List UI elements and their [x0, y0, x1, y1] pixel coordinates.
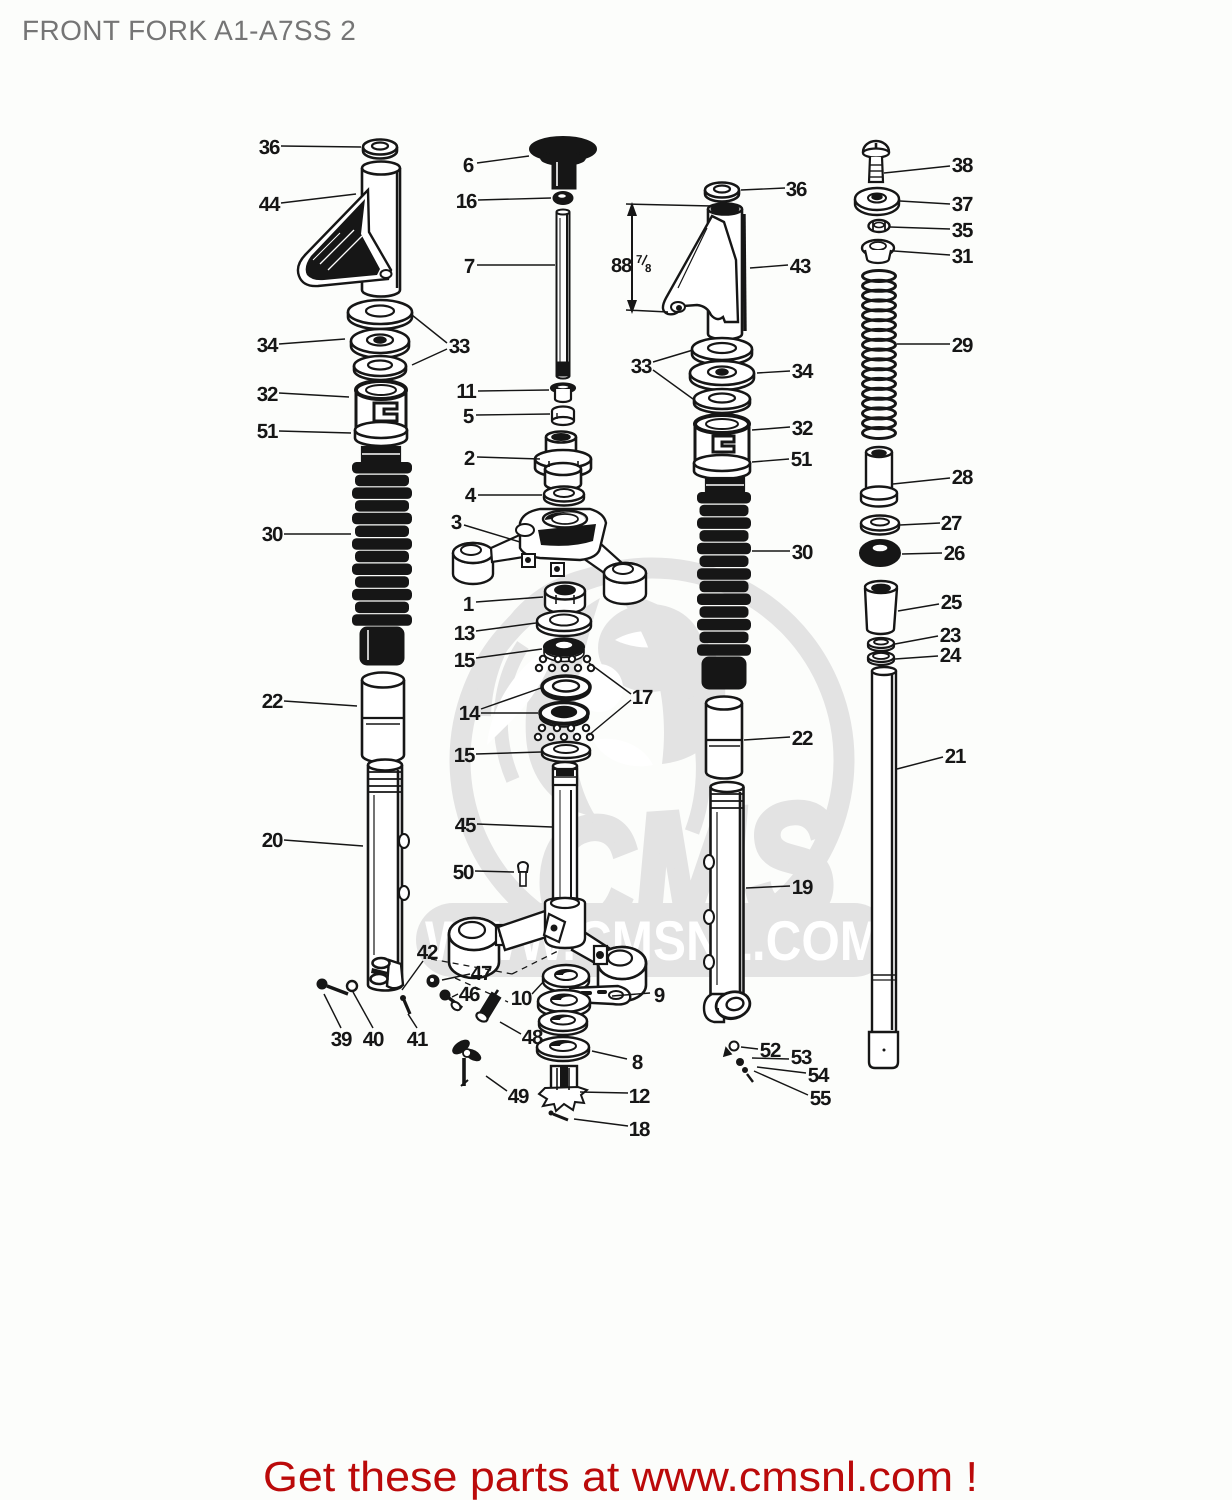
svg-text:8: 8 [645, 263, 652, 275]
svg-text:20: 20 [262, 829, 283, 852]
svg-text:42: 42 [417, 941, 438, 964]
svg-text:33: 33 [449, 335, 470, 358]
svg-text:14: 14 [459, 702, 481, 725]
svg-text:27: 27 [941, 512, 962, 535]
svg-text:38: 38 [952, 154, 973, 177]
svg-text:51: 51 [791, 448, 812, 471]
svg-text:17: 17 [632, 686, 653, 709]
svg-text:32: 32 [792, 417, 813, 440]
svg-text:37: 37 [952, 193, 973, 216]
svg-text:88: 88 [611, 255, 632, 277]
svg-text:24: 24 [940, 644, 962, 667]
svg-text:21: 21 [945, 745, 966, 768]
svg-text:25: 25 [941, 591, 962, 614]
svg-text:49: 49 [508, 1085, 529, 1108]
svg-text:45: 45 [455, 814, 476, 837]
svg-text:39: 39 [331, 1028, 352, 1051]
svg-text:1: 1 [463, 593, 474, 616]
svg-text:7: 7 [464, 255, 475, 278]
svg-text:2: 2 [464, 447, 475, 470]
svg-text:18: 18 [629, 1118, 650, 1141]
svg-text:22: 22 [792, 727, 813, 750]
svg-text:16: 16 [456, 190, 477, 213]
svg-text:34: 34 [792, 360, 814, 383]
svg-text:3: 3 [451, 511, 462, 534]
svg-text:55: 55 [810, 1087, 831, 1110]
svg-text:34: 34 [257, 334, 279, 357]
svg-text:12: 12 [629, 1085, 650, 1108]
svg-text:19: 19 [792, 876, 813, 899]
svg-text:46: 46 [459, 983, 480, 1006]
svg-text:47: 47 [471, 962, 492, 985]
svg-text:30: 30 [792, 541, 813, 564]
svg-text:30: 30 [262, 523, 283, 546]
svg-text:11: 11 [456, 380, 476, 403]
svg-text:36: 36 [786, 178, 807, 201]
svg-text:33: 33 [631, 355, 652, 378]
svg-text:26: 26 [944, 542, 965, 565]
svg-text:15: 15 [454, 744, 475, 767]
svg-text:9: 9 [654, 984, 665, 1007]
svg-text:10: 10 [511, 987, 532, 1010]
svg-text:35: 35 [952, 219, 973, 242]
svg-text:43: 43 [790, 255, 811, 278]
svg-text:31: 31 [952, 245, 973, 268]
svg-text:13: 13 [454, 622, 475, 645]
svg-text:40: 40 [363, 1028, 384, 1051]
svg-text:36: 36 [259, 136, 280, 159]
svg-text:7: 7 [636, 254, 642, 266]
svg-text:50: 50 [453, 861, 474, 884]
svg-text:41: 41 [407, 1028, 428, 1051]
svg-text:48: 48 [522, 1026, 543, 1049]
svg-text:29: 29 [952, 334, 973, 357]
svg-text:FRONT FORK A1-A7SS 2: FRONT FORK A1-A7SS 2 [22, 15, 356, 46]
svg-text:44: 44 [259, 193, 281, 216]
svg-text:4: 4 [465, 484, 477, 507]
svg-text:8: 8 [632, 1051, 643, 1074]
svg-text:32: 32 [257, 383, 278, 406]
svg-text:6: 6 [463, 154, 474, 177]
svg-text:5: 5 [463, 405, 474, 428]
svg-text:Get these parts at www.cmsnl.c: Get these parts at www.cmsnl.com ! [263, 1453, 978, 1500]
svg-text:51: 51 [257, 420, 278, 443]
svg-text:54: 54 [808, 1064, 830, 1087]
svg-text:28: 28 [952, 466, 973, 489]
svg-text:22: 22 [262, 690, 283, 713]
svg-text:15: 15 [454, 649, 475, 672]
